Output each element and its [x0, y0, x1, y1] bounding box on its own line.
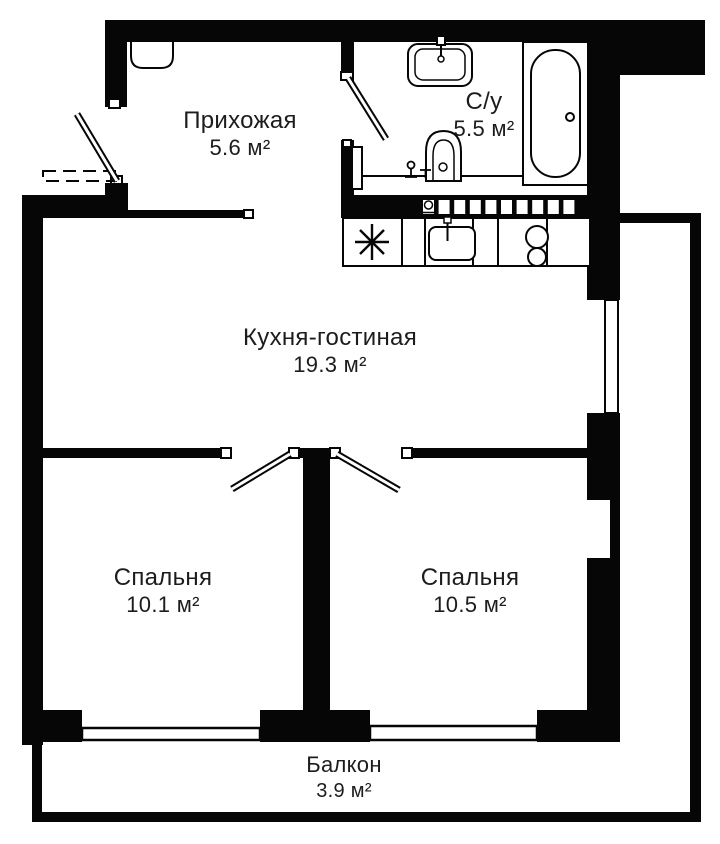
label-balcony: Балкон 3.9 м² — [306, 752, 382, 803]
room-area: 3.9 м² — [306, 779, 382, 803]
room-area: 19.3 м² — [243, 352, 417, 379]
hob — [526, 226, 548, 266]
bedroom-left-door — [232, 454, 290, 489]
room-name: С/у — [454, 87, 515, 116]
room-area: 10.5 м² — [421, 592, 520, 619]
label-bathroom: С/у 5.5 м² — [454, 87, 515, 143]
window-kitchen — [605, 300, 618, 413]
window-bedroom-right — [370, 726, 537, 740]
label-hallway: Прихожая 5.6 м² — [183, 106, 297, 162]
room-area: 5.5 м² — [454, 116, 515, 143]
bathtub — [523, 42, 588, 185]
room-area: 10.1 м² — [114, 592, 213, 619]
bathroom-door — [348, 78, 386, 139]
floor-plan: Прихожая 5.6 м² С/у 5.5 м² Кухня-гостина… — [0, 0, 720, 844]
fixtures-layer — [0, 0, 720, 844]
kitchen-counter — [343, 217, 590, 266]
towel-radiator — [352, 147, 362, 189]
label-bedroom-right: Спальня 10.5 м² — [421, 563, 520, 619]
room-name: Балкон — [306, 752, 382, 779]
entry-door — [43, 114, 117, 181]
room-name: Кухня-гостиная — [243, 323, 417, 352]
wardrobe — [131, 42, 173, 68]
vent-block — [422, 199, 575, 215]
label-kitchen-living: Кухня-гостиная 19.3 м² — [243, 323, 417, 379]
room-name: Спальня — [421, 563, 520, 592]
label-bedroom-left: Спальня 10.1 м² — [114, 563, 213, 619]
room-area: 5.6 м² — [183, 135, 297, 162]
bedroom-right-door — [337, 454, 399, 490]
room-name: Прихожая — [183, 106, 297, 135]
bathroom-sink — [408, 36, 472, 86]
room-name: Спальня — [114, 563, 213, 592]
window-bedroom-left — [82, 728, 260, 740]
